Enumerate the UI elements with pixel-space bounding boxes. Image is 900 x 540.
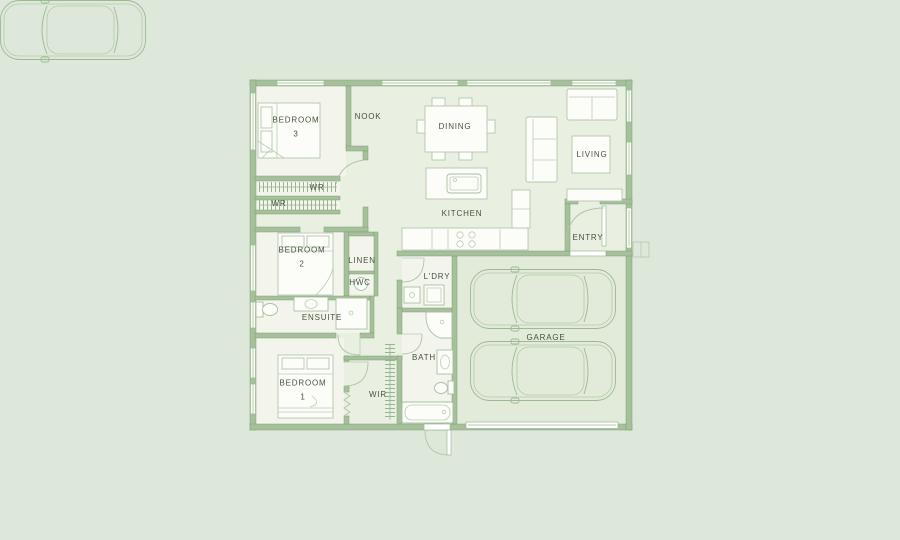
chaise-sofa	[526, 117, 557, 182]
toilet-bowl	[435, 383, 448, 394]
dining-chair	[432, 152, 445, 160]
room-label-wir: WIR	[369, 388, 387, 402]
room-label-bath: BATH	[412, 351, 436, 365]
wall-segment	[349, 271, 374, 274]
wall-segment	[402, 308, 452, 312]
toilet-bowl	[263, 304, 278, 316]
door-swing-back-door	[425, 430, 449, 455]
wall-segment	[346, 146, 368, 151]
room-label-dining: DINING	[439, 120, 472, 134]
room-label-bedroom-1: BEDROOM 1	[280, 376, 327, 403]
room-label-bedroom-3: BEDROOM 3	[273, 113, 320, 140]
car-windshield	[42, 6, 47, 54]
laundry-fittings	[404, 285, 444, 305]
wall-segment	[324, 227, 368, 232]
room-label-ensuite: ENSUITE	[302, 311, 342, 325]
dining-chair	[459, 98, 472, 106]
dining-chair	[417, 120, 425, 133]
wall-segment	[606, 251, 632, 256]
room-label-garage: GARAGE	[526, 331, 565, 345]
tv-unit	[567, 189, 622, 201]
wall-segment	[255, 227, 300, 232]
wall-segment	[255, 176, 340, 181]
entry-step	[633, 242, 649, 257]
dining-chair	[432, 98, 445, 106]
car-rear-window	[114, 7, 118, 53]
dining-chair	[459, 152, 472, 160]
pillow	[307, 358, 329, 369]
pillow	[261, 107, 272, 128]
car-cabin	[47, 6, 114, 54]
room-label-living: LIVING	[576, 148, 607, 162]
toilet-tank	[448, 381, 454, 394]
room-label-wr-side: WR	[272, 197, 287, 211]
car-top-view	[1, 0, 146, 62]
room-label-kitchen: KITCHEN	[442, 207, 483, 221]
wall-segment	[346, 86, 351, 148]
wall-segment	[344, 416, 349, 424]
wall-segment	[370, 296, 374, 333]
room-label-hwc: HWC	[349, 276, 371, 290]
entry-door-opening	[570, 251, 606, 256]
wall-segment	[349, 232, 374, 236]
dining-chair	[487, 120, 495, 133]
room-label-linen: LINEN	[348, 254, 376, 268]
kitchen-counter	[402, 228, 528, 250]
back-door-opening	[424, 424, 450, 430]
bath-vanity	[437, 350, 453, 374]
wall-segment	[363, 151, 368, 160]
room-label-bedroom-2: BEDROOM 2	[279, 243, 326, 270]
room-label-laundry: L'DRY	[424, 270, 451, 284]
wall-segment	[255, 333, 336, 338]
laundry-tub	[404, 287, 420, 303]
wall-segment	[255, 210, 340, 214]
room-label-entry: ENTRY	[573, 231, 604, 245]
pillow	[282, 358, 304, 369]
wall-segment	[397, 308, 402, 334]
toilet-tank	[256, 302, 263, 317]
wall-segment	[452, 256, 457, 424]
floor-plan: BEDROOM 3 NOOK DINING LIVING ENTRY KITCH…	[0, 0, 900, 540]
wall-segment	[397, 356, 402, 424]
wall-segment	[255, 196, 340, 200]
wall-segment	[360, 333, 374, 338]
room-label-nook: NOOK	[355, 110, 382, 124]
wall-segment	[397, 251, 570, 256]
back-door-leaf	[447, 430, 451, 455]
wall-segment	[397, 280, 402, 308]
room-label-wr-top: WR	[310, 181, 325, 195]
